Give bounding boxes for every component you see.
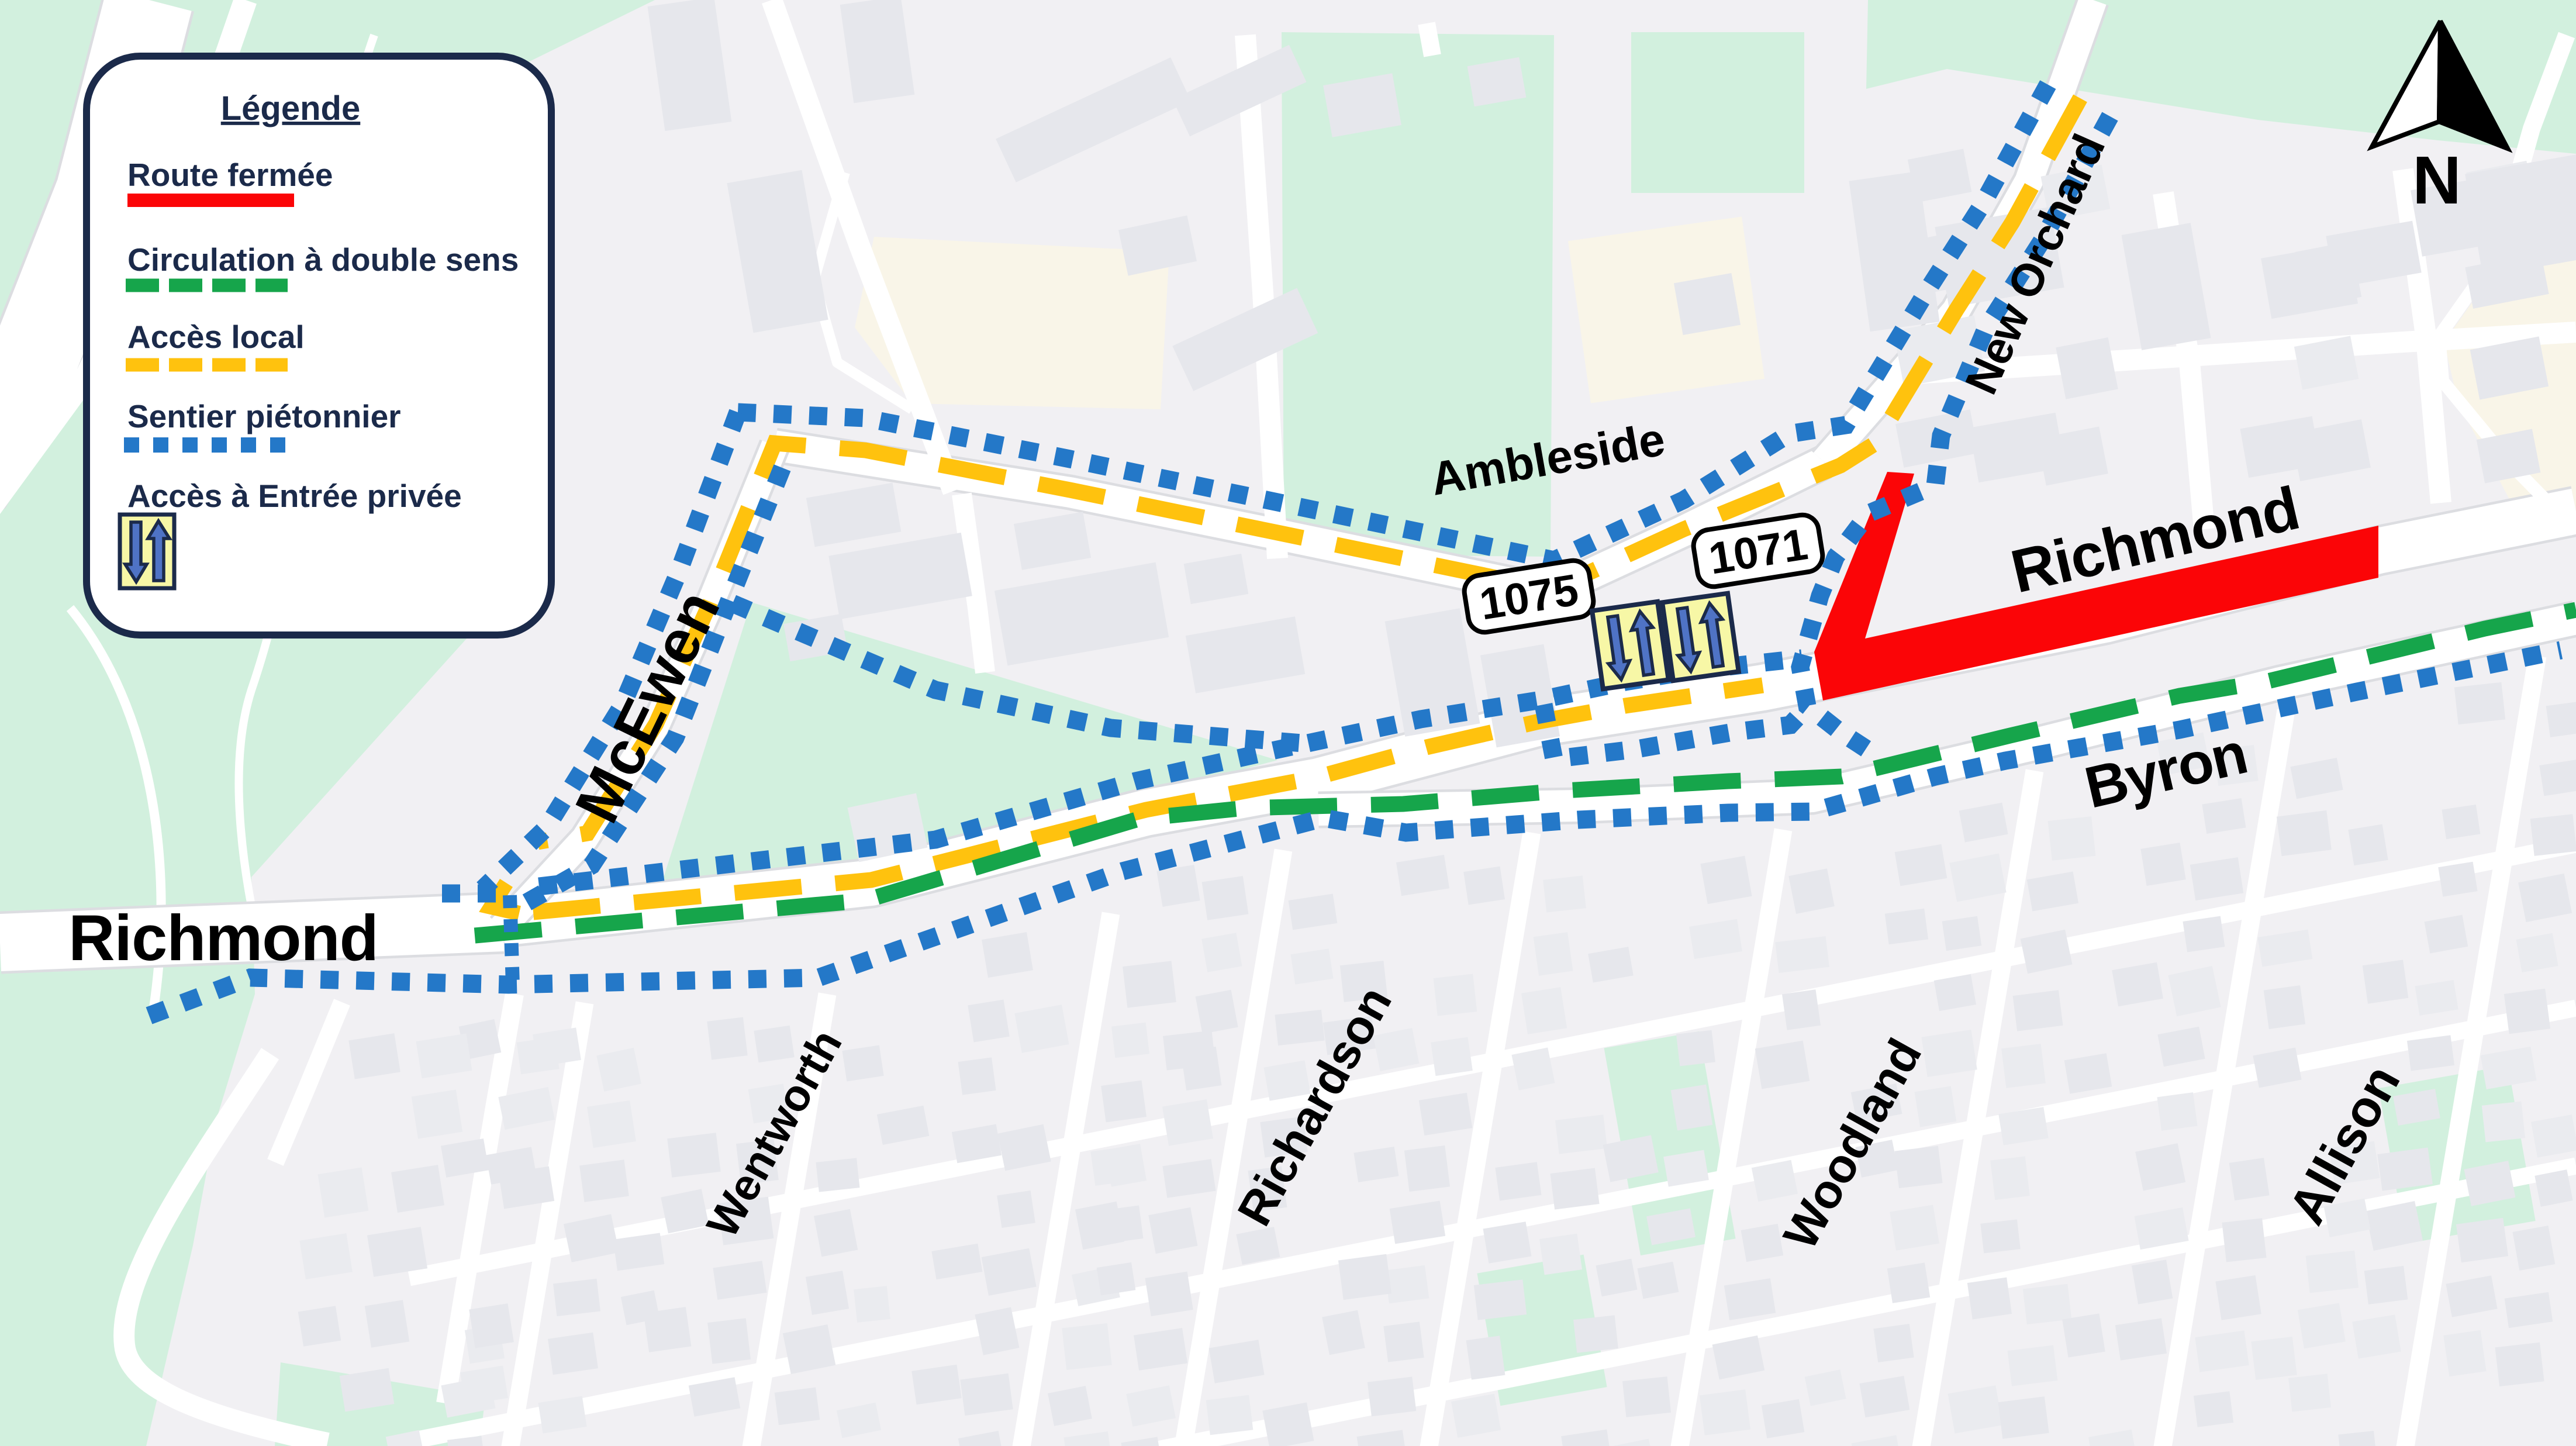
svg-text:Sentier piétonnier: Sentier piétonnier [127, 398, 401, 434]
svg-text:Accès à Entrée privée: Accès à Entrée privée [127, 478, 462, 514]
svg-text:Accès local: Accès local [127, 319, 305, 355]
svg-text:Légende: Légende [221, 89, 361, 127]
svg-text:Circulation à double sens: Circulation à double sens [127, 241, 519, 278]
svg-text:Route fermée: Route fermée [127, 157, 333, 193]
svg-text:N: N [2412, 142, 2461, 218]
svg-text:Richmond: Richmond [68, 902, 378, 974]
